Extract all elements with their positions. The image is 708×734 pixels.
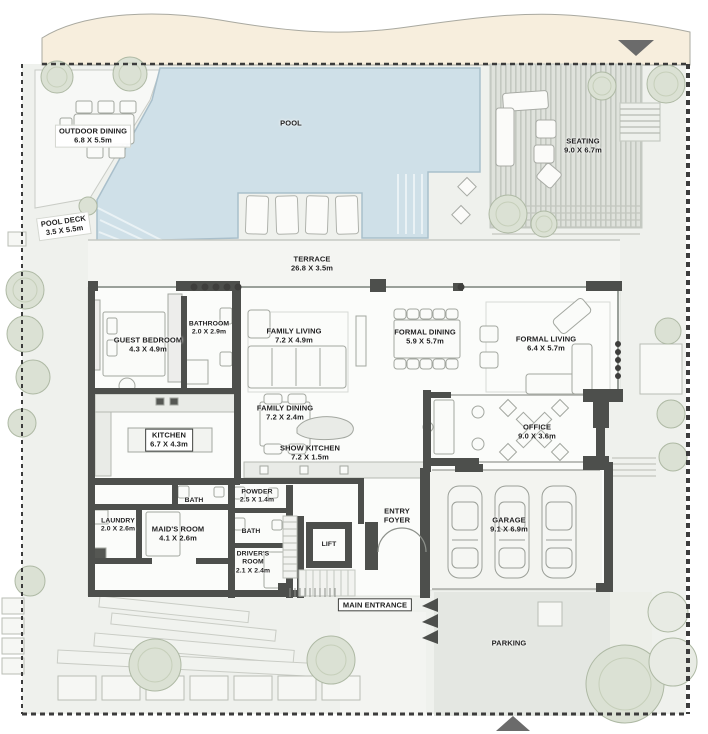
floor-plan-drawing	[0, 0, 708, 734]
area-name: GARAGE	[490, 516, 528, 525]
tree-icon	[647, 65, 685, 103]
area-name: BATH	[185, 497, 204, 505]
area-name: MAIN ENTRANCE	[343, 600, 407, 609]
tree-icon	[113, 57, 147, 91]
area-name: PARKING	[492, 638, 527, 647]
label-bathroom: BATHROOM 2.0 X 2.9m	[186, 321, 232, 338]
car-icon	[448, 486, 482, 578]
label-powder: POWDER 2.5 X 1.4m	[240, 489, 274, 506]
tree-icon	[7, 316, 43, 352]
terrace-floor	[88, 240, 620, 286]
label-garage: GARAGE 9.1 X 6.9m	[490, 516, 528, 535]
area-dims: 5.9 X 5.7m	[394, 337, 456, 346]
area-name: LIFT	[322, 541, 337, 549]
tree-icon	[129, 639, 181, 691]
area-name: SHOW KITCHEN	[280, 444, 340, 453]
area-dims: 2.5 X 1.4m	[240, 497, 274, 505]
tree-icon	[657, 400, 685, 428]
label-family-living: FAMILY LIVING 7.2 X 4.9m	[266, 327, 321, 346]
area-name: GUEST BEDROOM	[114, 336, 182, 345]
label-guest-bedroom: GUEST BEDROOM 4.3 X 4.9m	[114, 336, 182, 355]
area-dims: 9.0 X 6.7m	[564, 146, 602, 155]
area-dims: 6.4 X 5.7m	[516, 344, 576, 353]
label-maids-room: MAID'S ROOM 4.1 X 2.6m	[152, 525, 204, 544]
tree-icon	[659, 443, 687, 471]
tree-icon	[307, 636, 355, 684]
side-pad	[640, 344, 682, 394]
tree-icon	[648, 592, 688, 632]
parking-area	[434, 592, 610, 716]
label-family-dining: FAMILY DINING 7.2 X 2.4m	[257, 404, 313, 423]
deck-stairs	[620, 103, 660, 141]
area-name: DRIVER'S ROOM	[227, 550, 279, 567]
label-terrace: TERRACE 26.8 X 3.5m	[291, 255, 333, 274]
area-dims: 2.1 X 2.4m	[227, 567, 279, 575]
car-icon	[542, 486, 576, 578]
area-name: TERRACE	[291, 255, 333, 264]
area-dims: 7.2 X 1.5m	[280, 453, 340, 462]
area-dims: 2.0 X 2.9m	[186, 329, 232, 337]
area-name: FORMAL LIVING	[516, 335, 576, 344]
label-main-entrance: MAIN ENTRANCE	[338, 598, 412, 611]
area-name: FORMAL DINING	[394, 328, 456, 337]
area-name: POOL	[280, 118, 302, 127]
area-dims: 4.3 X 4.9m	[114, 345, 182, 354]
area-dims: 9.0 X 3.6m	[518, 432, 556, 441]
utility-pad	[538, 602, 562, 626]
driveway-chevrons	[422, 598, 438, 644]
floor-plan: OUTDOOR DINING 6.8 X 5.5m POOL DECK 3.5 …	[0, 0, 708, 734]
area-name: SEATING	[564, 137, 602, 146]
label-kitchen: KITCHEN 6.7 X 4.3m	[145, 429, 193, 452]
tree-icon	[655, 318, 681, 344]
label-parking: PARKING	[492, 638, 527, 647]
label-laundry: LAUNDRY 2.0 X 2.6m	[101, 518, 135, 535]
area-dims: 26.8 X 3.5m	[291, 264, 333, 273]
area-dims: 2.0 X 2.6m	[101, 526, 135, 534]
area-dims: 7.2 X 2.4m	[257, 413, 313, 422]
area-name: MAID'S ROOM	[152, 525, 204, 534]
label-formal-dining: FORMAL DINING 5.9 X 5.7m	[394, 328, 456, 347]
area-dims: 7.2 X 4.9m	[266, 336, 321, 345]
label-formal-living: FORMAL LIVING 6.4 X 5.7m	[516, 335, 576, 354]
area-dims: 4.1 X 2.6m	[152, 534, 204, 543]
area-name: BATH	[242, 528, 261, 536]
label-bath-lower: BATH	[242, 528, 261, 536]
tree-icon	[15, 566, 45, 596]
label-bath-upper: BATH	[185, 497, 204, 505]
area-dims: 6.7 X 4.3m	[150, 440, 188, 449]
label-lift: LIFT	[322, 541, 337, 549]
tree-icon	[531, 211, 557, 237]
label-drivers-room: DRIVER'S ROOM 2.1 X 2.4m	[227, 550, 279, 575]
area-name: KITCHEN	[150, 431, 188, 440]
area-name: FAMILY DINING	[257, 404, 313, 413]
tree-icon	[588, 72, 616, 100]
label-show-kitchen: SHOW KITCHEN 7.2 X 1.5m	[280, 444, 340, 463]
tree-icon	[489, 195, 527, 233]
label-outdoor-dining: OUTDOOR DINING 6.8 X 5.5m	[55, 125, 131, 148]
label-entry-foyer: ENTRY FOYER	[378, 507, 416, 526]
area-name: ENTRY FOYER	[378, 507, 416, 526]
label-office: OFFICE 9.0 X 3.6m	[518, 423, 556, 442]
area-dims: 6.8 X 5.5m	[59, 136, 127, 145]
tree-icon	[6, 271, 44, 309]
area-dims: 9.1 X 6.9m	[490, 525, 528, 534]
sand-band	[42, 14, 690, 65]
area-name: OFFICE	[518, 423, 556, 432]
area-name: OUTDOOR DINING	[59, 127, 127, 136]
label-pool: POOL	[280, 118, 302, 127]
tree-icon	[41, 61, 73, 93]
area-name: FAMILY LIVING	[266, 327, 321, 336]
triangle-up-icon	[496, 716, 530, 731]
label-seating: SEATING 9.0 X 6.7m	[564, 137, 602, 156]
